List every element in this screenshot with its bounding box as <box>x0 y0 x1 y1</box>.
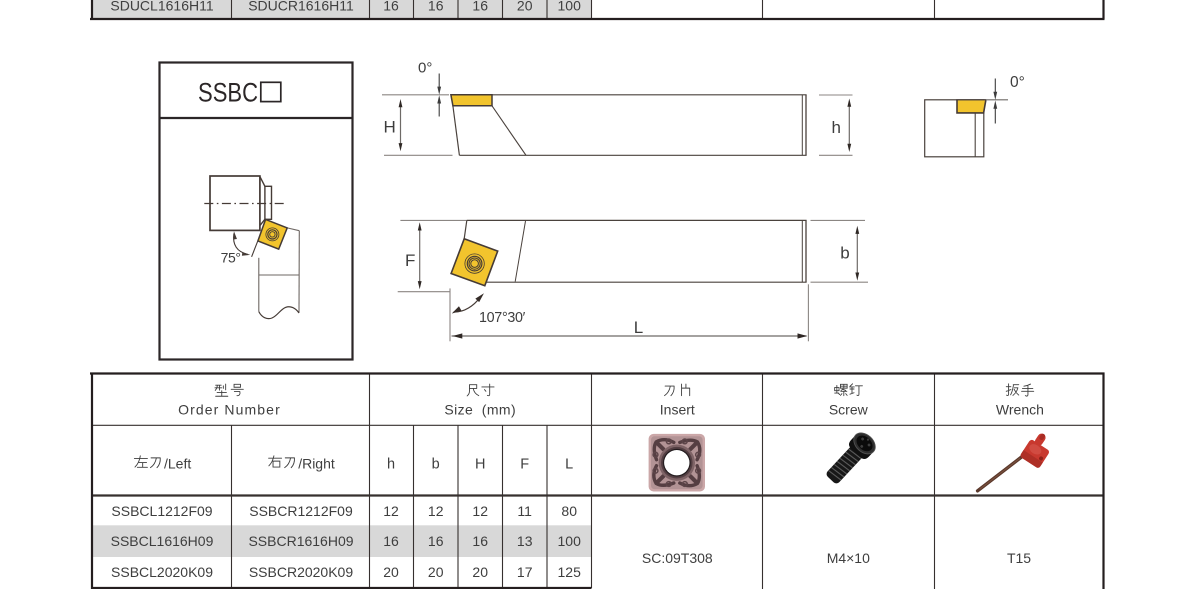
svg-text:107°30′: 107°30′ <box>479 310 526 326</box>
svg-text:80: 80 <box>561 503 577 519</box>
svg-text:SSBCL1616H09: SSBCL1616H09 <box>111 533 214 549</box>
svg-text:h: h <box>832 118 841 137</box>
svg-text:SSBCR1212F09: SSBCR1212F09 <box>249 503 353 519</box>
svg-text:H: H <box>384 117 396 136</box>
svg-text:Screw: Screw <box>829 401 869 417</box>
svg-text:Insert: Insert <box>660 401 695 417</box>
svg-text:/Right: /Right <box>298 455 335 471</box>
svg-text:L: L <box>634 318 643 337</box>
svg-text:T15: T15 <box>1007 550 1031 566</box>
svg-text:Wrench: Wrench <box>996 401 1044 417</box>
svg-text:Size (mm): Size (mm) <box>444 401 516 417</box>
svg-text:SSBCL2020K09: SSBCL2020K09 <box>111 564 213 580</box>
svg-text:100: 100 <box>558 0 582 14</box>
svg-text:16: 16 <box>428 0 444 14</box>
svg-text:Order Number: Order Number <box>178 401 281 417</box>
svg-text:17: 17 <box>517 564 533 580</box>
svg-text:SSBCR2020K09: SSBCR2020K09 <box>249 564 354 580</box>
svg-text:13: 13 <box>517 533 533 549</box>
svg-text:20: 20 <box>517 0 533 14</box>
svg-text:F: F <box>405 251 415 270</box>
svg-text:SC:09T308: SC:09T308 <box>642 550 713 566</box>
svg-text:20: 20 <box>472 564 488 580</box>
svg-text:M4×10: M4×10 <box>827 550 870 566</box>
svg-text:SSBCL1212F09: SSBCL1212F09 <box>111 503 212 519</box>
svg-text:SDUCR1616H11: SDUCR1616H11 <box>248 0 354 14</box>
svg-text:F: F <box>520 456 529 472</box>
svg-text:16: 16 <box>472 0 488 14</box>
svg-text:12: 12 <box>472 503 488 519</box>
svg-text:16: 16 <box>472 533 488 549</box>
svg-text:20: 20 <box>428 564 444 580</box>
svg-text:/Left: /Left <box>164 455 191 471</box>
svg-text:12: 12 <box>428 503 444 519</box>
svg-text:16: 16 <box>383 0 399 14</box>
svg-text:h: h <box>387 456 395 472</box>
svg-text:16: 16 <box>383 533 399 549</box>
svg-text:SDUCL1616H11: SDUCL1616H11 <box>110 0 213 14</box>
svg-text:16: 16 <box>428 533 444 549</box>
svg-text:75°: 75° <box>221 250 241 266</box>
svg-text:H: H <box>475 456 485 472</box>
svg-text:b: b <box>432 456 440 472</box>
svg-text:0°: 0° <box>1010 74 1025 91</box>
svg-text:b: b <box>840 243 849 262</box>
svg-text:125: 125 <box>558 564 582 580</box>
svg-text:11: 11 <box>517 503 532 519</box>
svg-text:12: 12 <box>383 503 399 519</box>
svg-text:SSBC: SSBC <box>198 78 258 108</box>
svg-text:L: L <box>565 456 573 472</box>
svg-text:0°: 0° <box>418 60 432 77</box>
svg-text:20: 20 <box>383 564 399 580</box>
svg-text:SSBCR1616H09: SSBCR1616H09 <box>248 533 353 549</box>
svg-text:100: 100 <box>558 533 582 549</box>
